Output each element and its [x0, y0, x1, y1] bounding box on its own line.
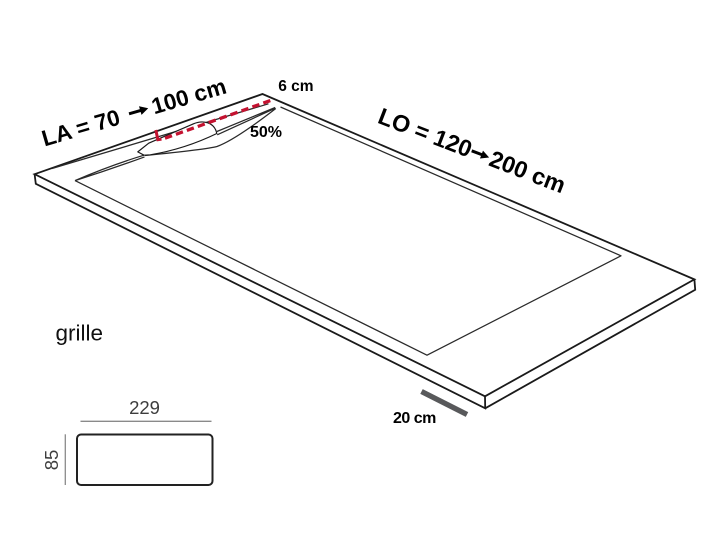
- svg-text:LA = 70: LA = 70: [39, 105, 123, 151]
- svg-text:200 cm: 200 cm: [486, 146, 569, 199]
- svg-text:20 cm: 20 cm: [393, 410, 436, 427]
- svg-text:grille: grille: [56, 321, 104, 346]
- svg-text:50%: 50%: [250, 124, 282, 141]
- svg-text:6 cm: 6 cm: [278, 78, 313, 95]
- svg-text:229: 229: [129, 397, 160, 418]
- svg-text:85: 85: [41, 450, 62, 471]
